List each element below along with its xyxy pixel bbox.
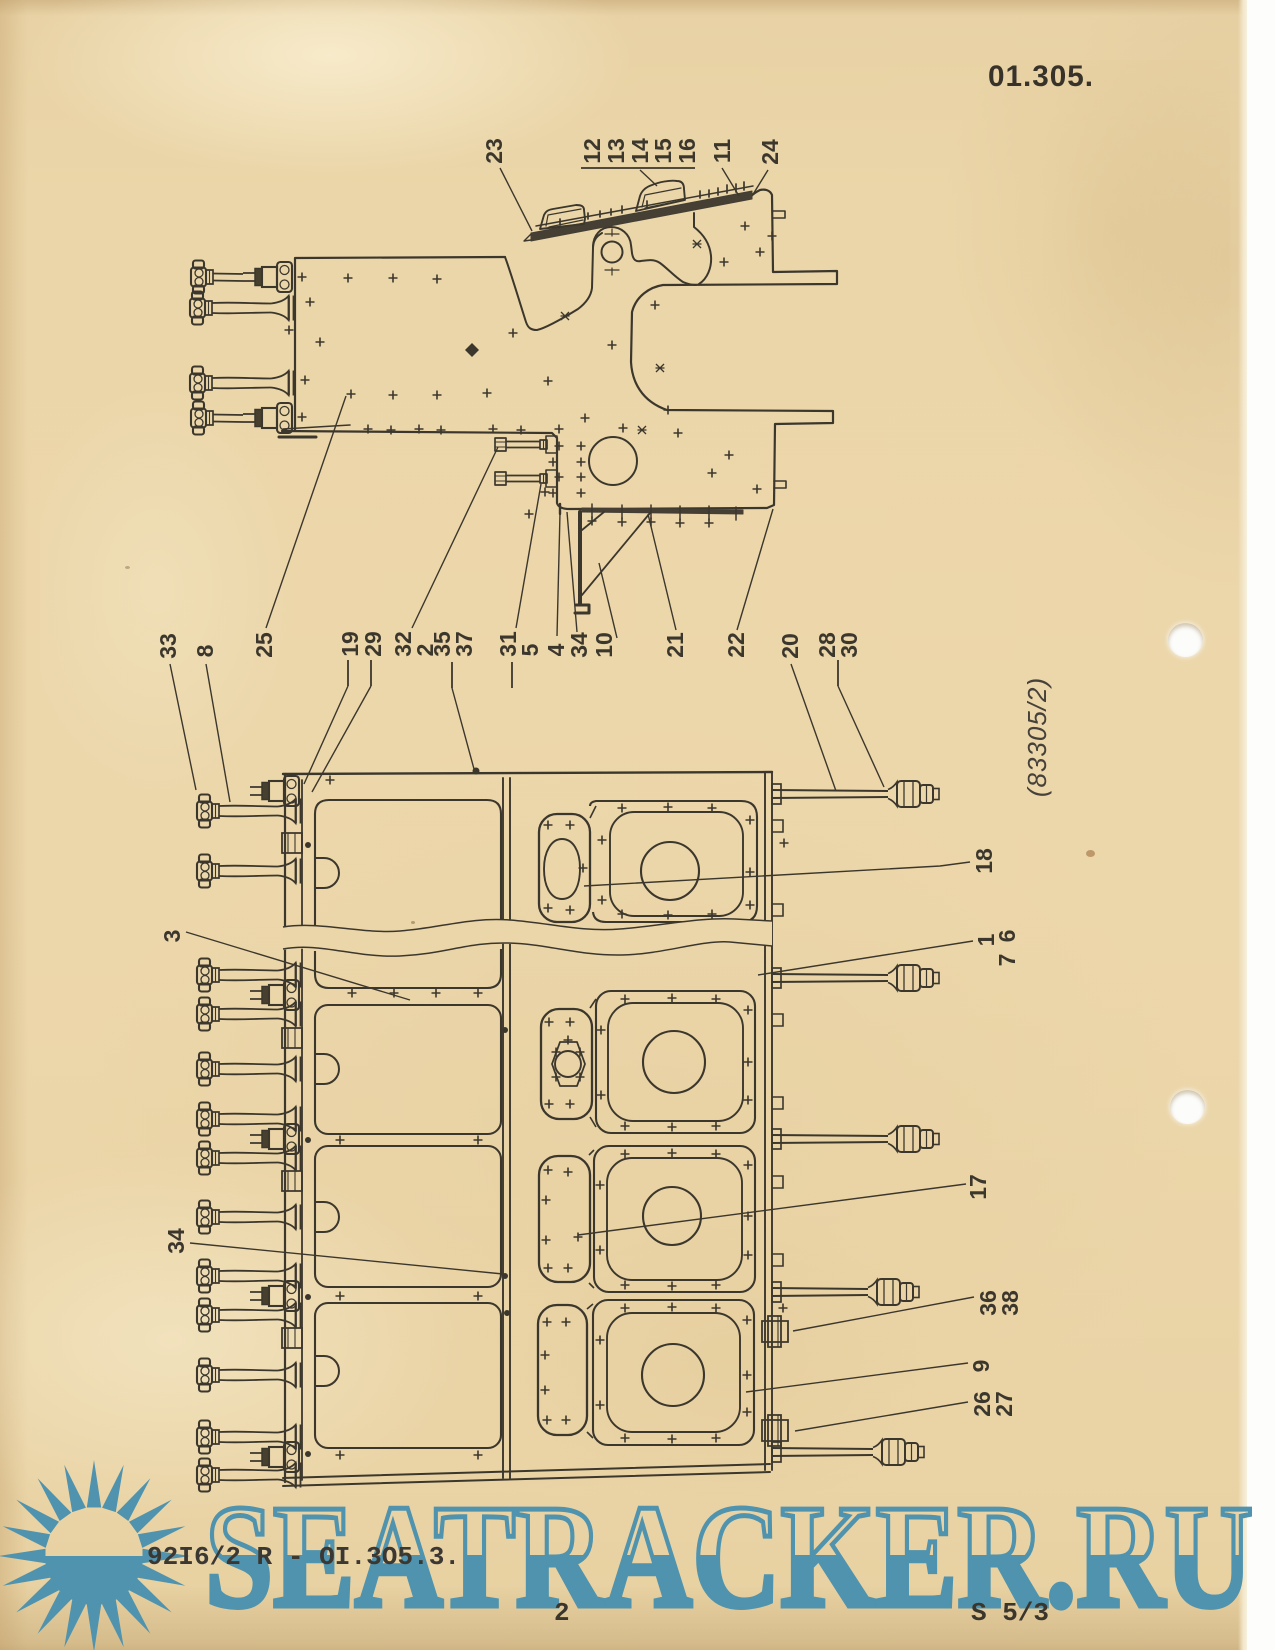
svg-text:17: 17 <box>965 1174 991 1200</box>
svg-text:34: 34 <box>566 632 592 658</box>
svg-text:5: 5 <box>517 643 543 656</box>
svg-text:33: 33 <box>155 633 181 659</box>
svg-text:(83305/2): (83305/2) <box>1022 677 1052 797</box>
svg-text:38: 38 <box>997 1290 1023 1316</box>
svg-text:27: 27 <box>991 1391 1017 1417</box>
svg-text:10: 10 <box>591 632 617 658</box>
svg-text:2: 2 <box>554 1598 570 1628</box>
svg-text:16: 16 <box>674 138 700 164</box>
svg-text:12: 12 <box>579 138 605 164</box>
svg-text:15: 15 <box>650 138 676 164</box>
svg-text:6: 6 <box>994 930 1020 943</box>
svg-text:01.305.: 01.305. <box>988 60 1094 93</box>
svg-text:23: 23 <box>481 138 507 164</box>
svg-text:8: 8 <box>192 644 218 657</box>
svg-text:24: 24 <box>757 139 783 165</box>
svg-text:30: 30 <box>836 632 862 658</box>
svg-text:25: 25 <box>251 632 277 658</box>
svg-text:13: 13 <box>603 138 629 164</box>
svg-text:20: 20 <box>777 633 803 659</box>
svg-text:21: 21 <box>662 632 688 658</box>
svg-text:37: 37 <box>451 631 477 657</box>
svg-text:29: 29 <box>360 631 386 657</box>
svg-text:34: 34 <box>163 1228 189 1254</box>
svg-text:S 5/3: S 5/3 <box>971 1598 1049 1628</box>
svg-text:22: 22 <box>723 632 749 658</box>
svg-text:9: 9 <box>968 1360 994 1373</box>
svg-text:18: 18 <box>971 848 997 874</box>
svg-text:3: 3 <box>159 930 185 943</box>
svg-text:7: 7 <box>994 954 1020 967</box>
svg-text:92I6/2 R - OI.3O5.3.: 92I6/2 R - OI.3O5.3. <box>147 1542 460 1572</box>
svg-text:11: 11 <box>709 139 735 164</box>
